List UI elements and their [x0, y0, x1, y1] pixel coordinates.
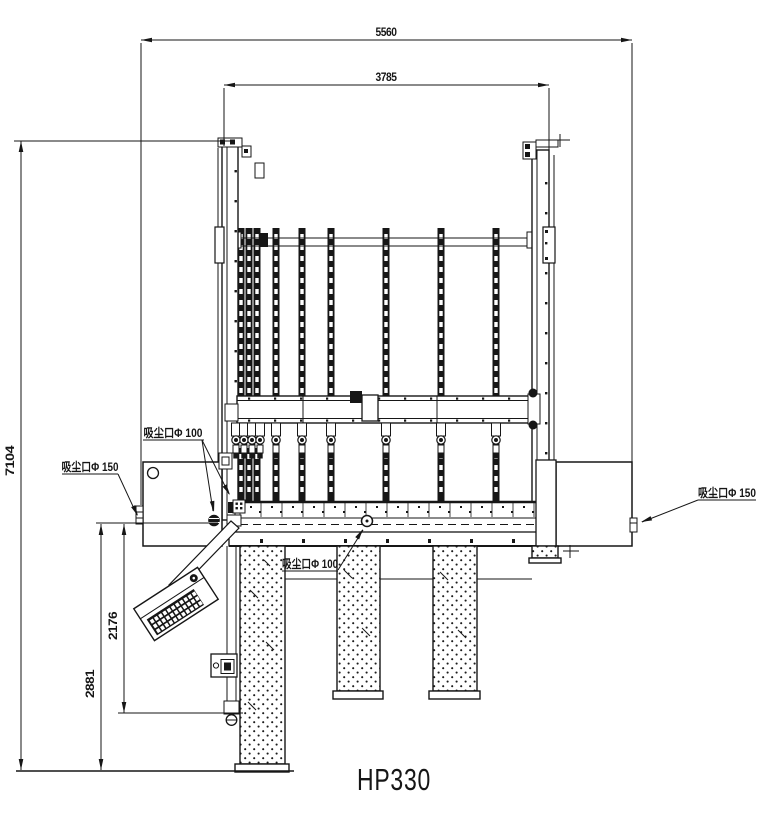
right-table: [536, 460, 637, 558]
left-table: [136, 453, 232, 546]
leg-mid-2: [433, 546, 477, 691]
legs: [235, 546, 561, 772]
dust-port-150-right-tab: [630, 518, 637, 532]
lower-column: [224, 546, 239, 725]
drawing-title: HP330: [357, 762, 431, 797]
leg-mid-2-foot: [429, 691, 480, 699]
dust-port-150-left-tab: [136, 506, 143, 524]
base: [229, 532, 559, 546]
drawing-svg: 5560 3785 7104 2881 2176 吸尘口Φ 150 吸尘口Φ 1…: [0, 0, 766, 829]
dim-column-height: 2176: [108, 612, 120, 640]
machine-view: [134, 134, 637, 772]
slotted-rails: [238, 228, 500, 502]
callout-dust-port-100-lower: 吸尘口Φ 100: [282, 556, 338, 571]
clamp-row: [232, 423, 501, 458]
conveyor: [228, 500, 569, 532]
electrical-box: [211, 654, 237, 677]
dim-overall-width: 5560: [376, 27, 397, 39]
dim-base-to-ground: 2881: [85, 669, 97, 698]
dust-port-100-upper-port: [208, 515, 220, 527]
callout-dust-port-150-right: 吸尘口Φ 150: [698, 485, 756, 500]
dim-total-height: 7104: [5, 445, 17, 476]
technical-drawing-hp330: 5560 3785 7104 2881 2176 吸尘口Φ 150 吸尘口Φ 1…: [0, 0, 766, 829]
leg-mid-1-foot: [333, 691, 383, 699]
leg-mid-1: [337, 546, 380, 691]
callout-dust-port-150-left: 吸尘口Φ 150: [62, 459, 119, 474]
dim-frame-width: 3785: [376, 72, 398, 84]
callout-dust-port-100-upper: 吸尘口Φ 100: [144, 425, 203, 440]
leg-left: [240, 546, 285, 764]
leg-right-foot-block: [532, 546, 558, 558]
